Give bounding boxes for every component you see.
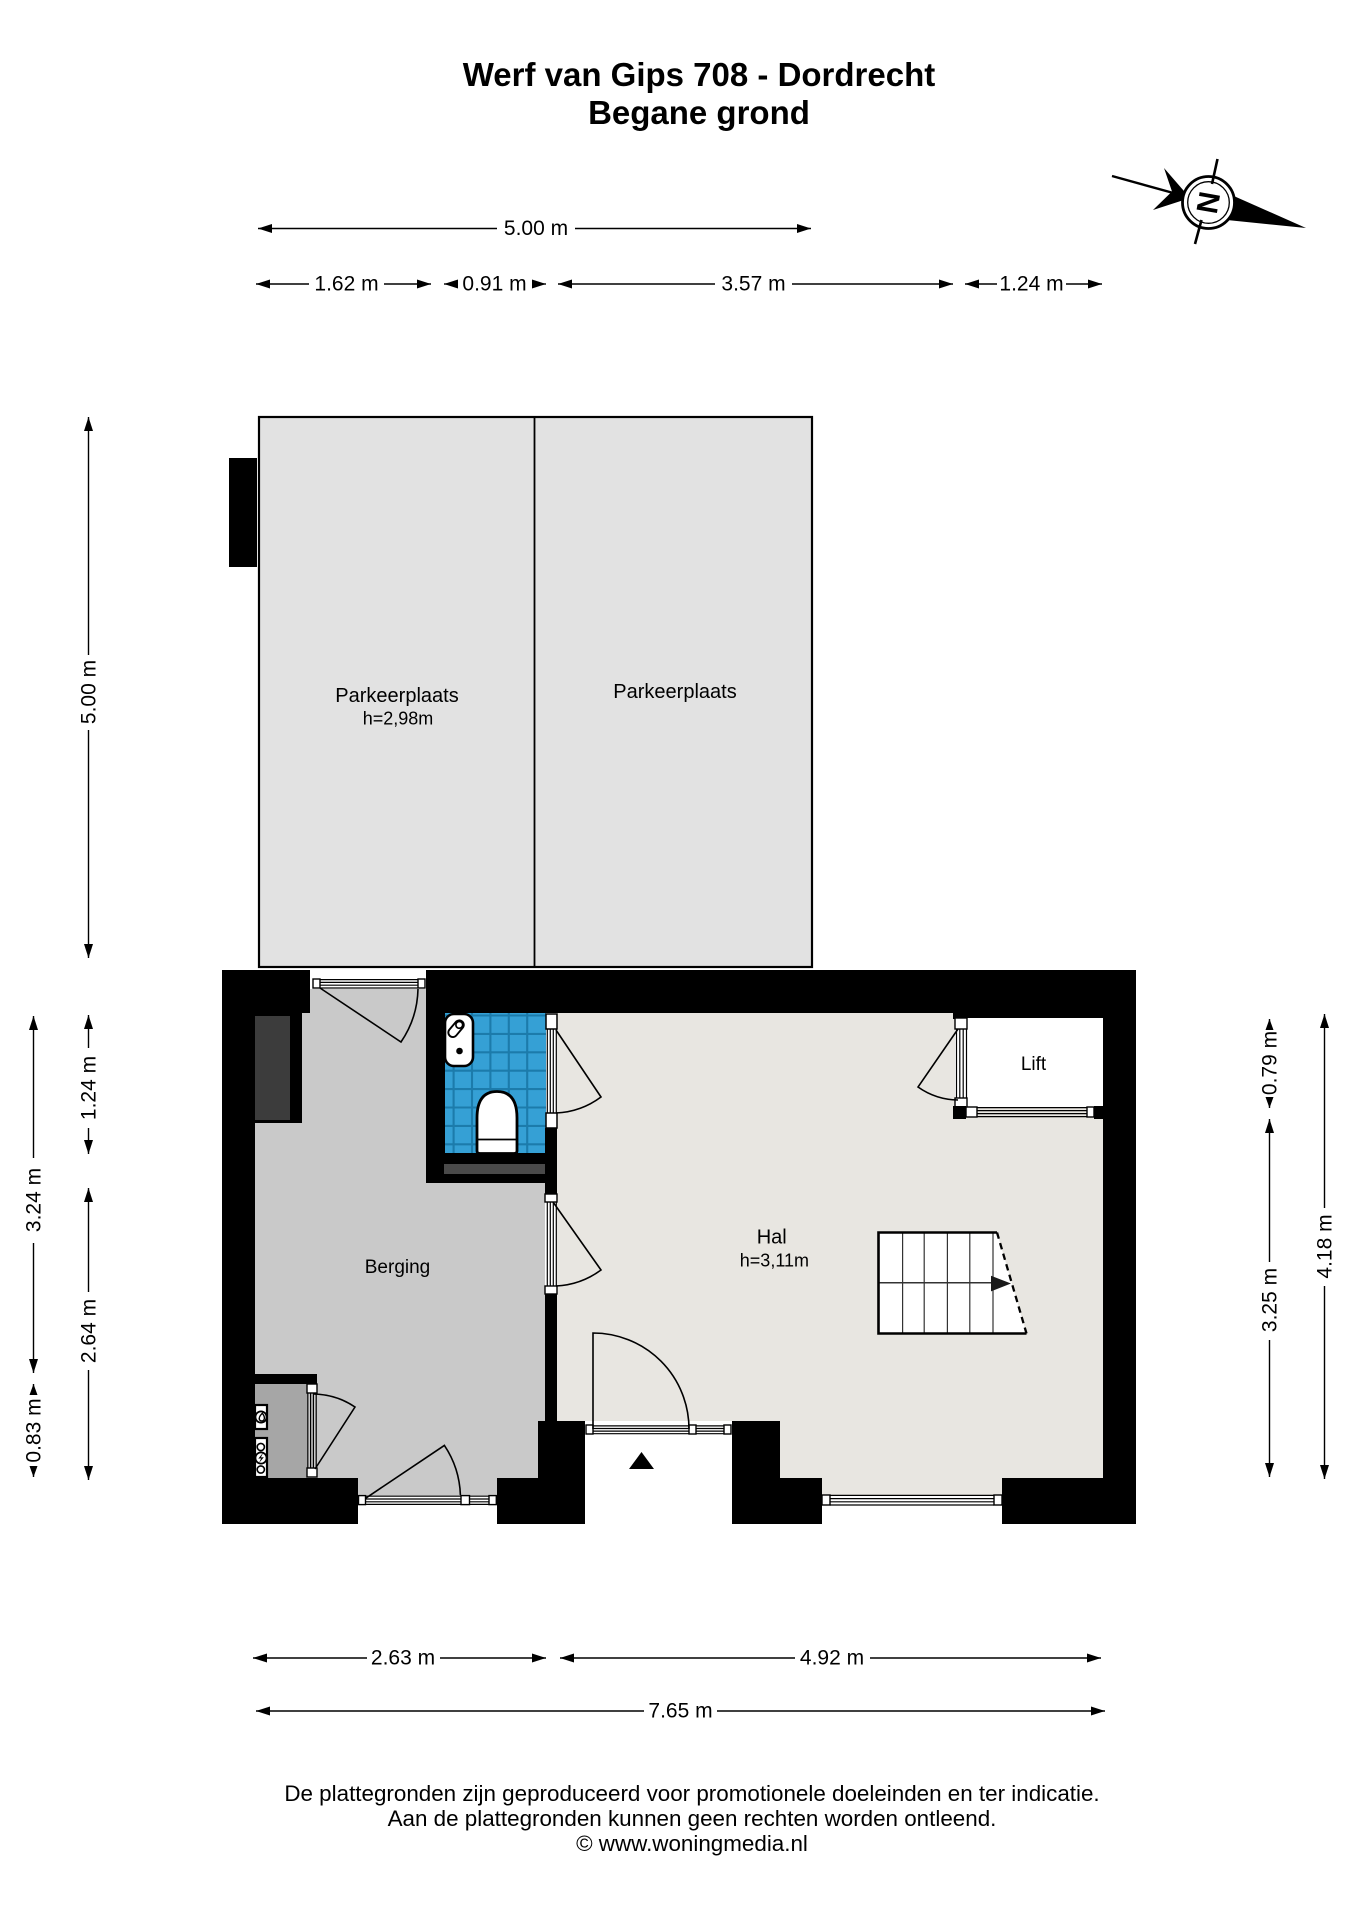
svg-text:1.24 m: 1.24 m (999, 273, 1063, 296)
svg-text:0.83 m: 0.83 m (23, 1398, 46, 1462)
svg-text:5.00 m: 5.00 m (504, 217, 568, 240)
svg-text:3.25 m: 3.25 m (1259, 1268, 1282, 1332)
svg-text:De plattegronden zijn geproduc: De plattegronden zijn geproduceerd voor … (284, 1781, 1099, 1806)
svg-text:0.91 m: 0.91 m (462, 273, 526, 296)
svg-text:Werf van Gips 708 - Dordrecht: Werf van Gips 708 - Dordrecht (463, 56, 936, 93)
svg-text:© www.woningmedia.nl: © www.woningmedia.nl (576, 1831, 808, 1856)
svg-text:Begane grond: Begane grond (588, 94, 810, 131)
svg-text:Berging: Berging (365, 1257, 431, 1278)
svg-text:Lift: Lift (1021, 1054, 1047, 1075)
svg-text:0.79 m: 0.79 m (1259, 1031, 1282, 1095)
svg-text:Parkeerplaats: Parkeerplaats (613, 681, 736, 703)
svg-text:3.57 m: 3.57 m (721, 273, 785, 296)
svg-text:Hal: Hal (757, 1227, 787, 1249)
svg-text:Parkeerplaats: Parkeerplaats (335, 685, 458, 707)
svg-text:Aan de plattegronden kunnen ge: Aan de plattegronden kunnen geen rechten… (388, 1806, 997, 1831)
svg-text:1.24 m: 1.24 m (78, 1056, 101, 1120)
svg-text:7.65 m: 7.65 m (648, 1700, 712, 1723)
svg-text:1.62 m: 1.62 m (314, 273, 378, 296)
svg-text:3.24 m: 3.24 m (23, 1168, 46, 1232)
svg-text:4.92 m: 4.92 m (800, 1647, 864, 1670)
svg-text:h=2,98m: h=2,98m (363, 709, 434, 729)
svg-text:2.64 m: 2.64 m (78, 1299, 101, 1363)
svg-text:4.18 m: 4.18 m (1314, 1214, 1337, 1278)
svg-text:5.00 m: 5.00 m (78, 660, 101, 724)
svg-text:2.63 m: 2.63 m (371, 1647, 435, 1670)
svg-text:h=3,11m: h=3,11m (740, 1251, 809, 1271)
